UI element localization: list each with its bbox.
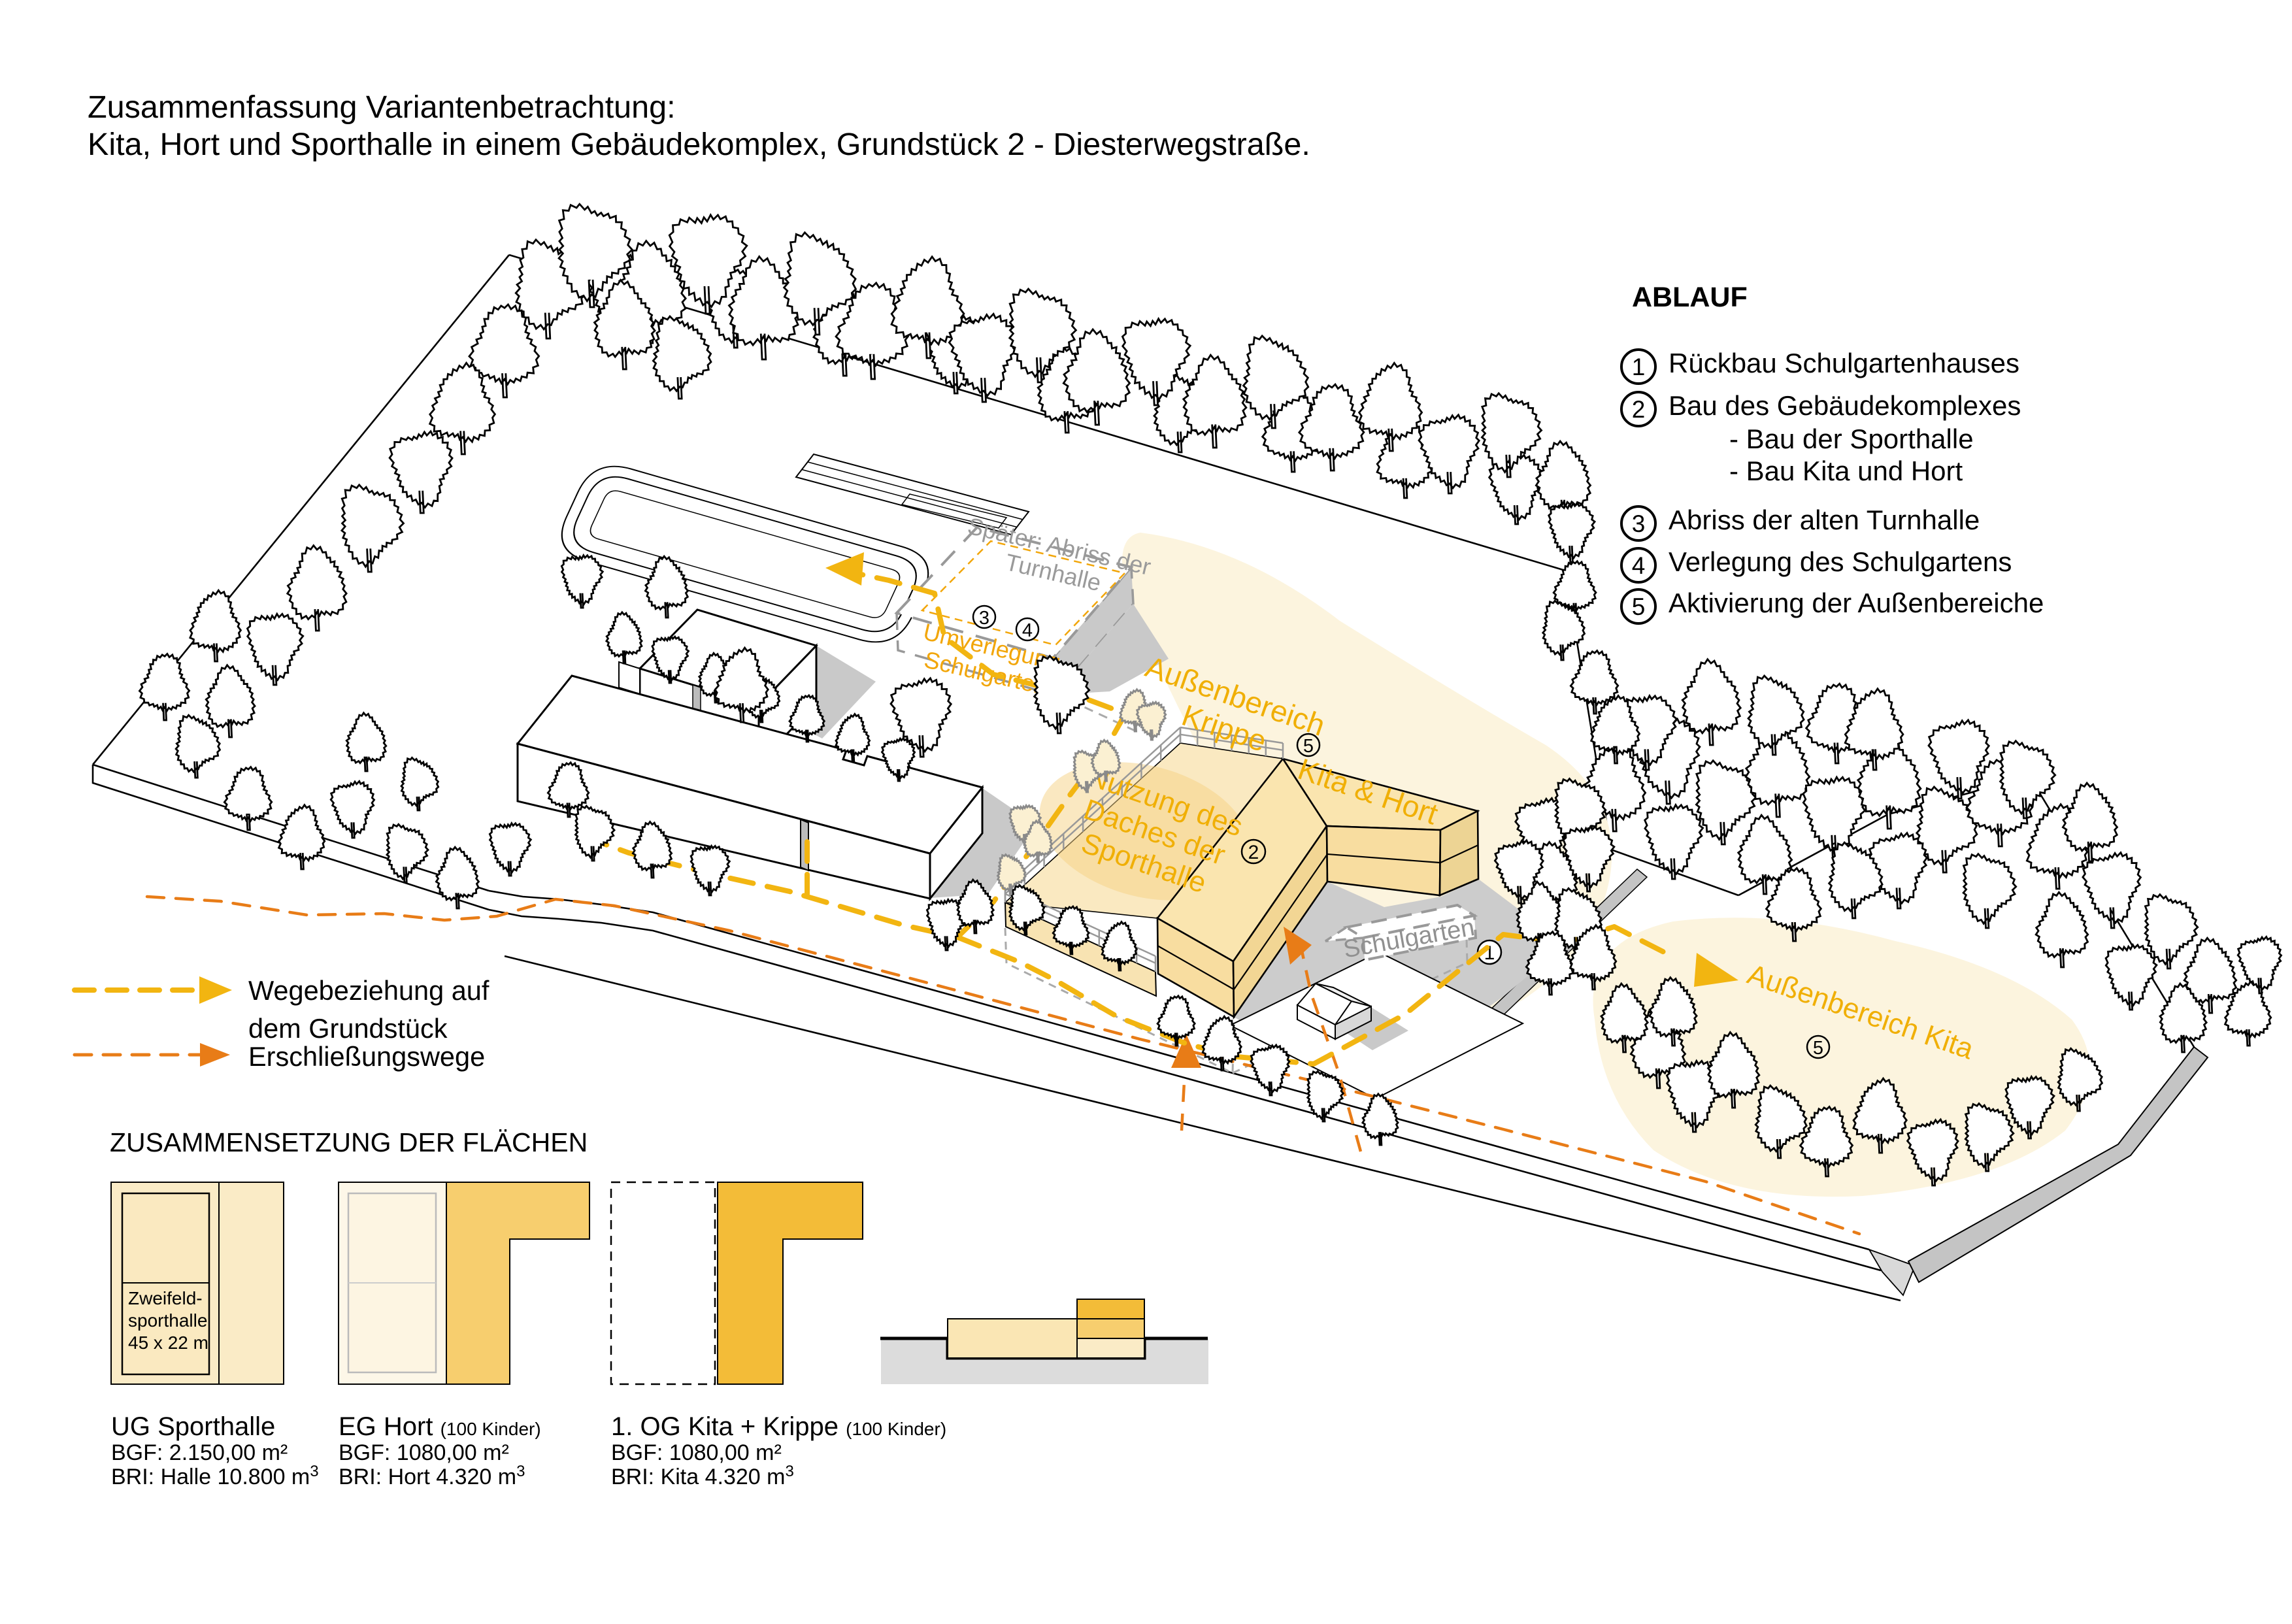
svg-text:BGF: 1080,00 m²: BGF: 1080,00 m² bbox=[339, 1440, 509, 1465]
svg-text:BRI: Kita 4.320 m3: BRI: Kita 4.320 m3 bbox=[611, 1463, 794, 1489]
svg-text:dem Grundstück: dem Grundstück bbox=[248, 1013, 448, 1044]
svg-text:BGF: 2.150,00 m²: BGF: 2.150,00 m² bbox=[111, 1440, 288, 1465]
svg-text:Abriss der alten Turnhalle: Abriss der alten Turnhalle bbox=[1669, 505, 1980, 535]
svg-text:Bau des Gebäudekomplexes: Bau des Gebäudekomplexes bbox=[1669, 390, 2021, 421]
svg-text:Rückbau Schulgartenhauses: Rückbau Schulgartenhauses bbox=[1669, 348, 2019, 378]
svg-text:3: 3 bbox=[979, 608, 989, 629]
svg-text:4: 4 bbox=[1022, 620, 1033, 641]
svg-text:5: 5 bbox=[1813, 1038, 1823, 1059]
svg-text:Wegebeziehung auf: Wegebeziehung auf bbox=[248, 975, 490, 1006]
svg-text:Verlegung des Schulgartens: Verlegung des Schulgartens bbox=[1669, 546, 2012, 577]
svg-text:BRI: Hort 4.320 m3: BRI: Hort 4.320 m3 bbox=[339, 1463, 525, 1489]
svg-text:UG Sporthalle: UG Sporthalle bbox=[111, 1412, 275, 1441]
svg-text:sporthalle: sporthalle bbox=[128, 1310, 207, 1331]
svg-text:Kita, Hort und Sporthalle in e: Kita, Hort und Sporthalle in einem Gebäu… bbox=[88, 127, 1310, 162]
svg-text:5: 5 bbox=[1632, 593, 1646, 620]
svg-text:Aktivierung der Außenbereiche: Aktivierung der Außenbereiche bbox=[1669, 588, 2044, 618]
svg-text:1: 1 bbox=[1632, 354, 1646, 380]
svg-text:5: 5 bbox=[1303, 736, 1314, 757]
svg-text:- Bau der Sporthalle: - Bau der Sporthalle bbox=[1729, 423, 1974, 454]
svg-text:ZUSAMMENSETZUNG DER FLÄCHEN: ZUSAMMENSETZUNG DER FLÄCHEN bbox=[110, 1127, 588, 1157]
svg-text:ABLAUF: ABLAUF bbox=[1632, 282, 1748, 313]
svg-text:BRI: Halle 10.800 m3: BRI: Halle 10.800 m3 bbox=[111, 1463, 319, 1489]
svg-text:4: 4 bbox=[1632, 552, 1646, 579]
svg-text:BGF: 1080,00 m²: BGF: 1080,00 m² bbox=[611, 1440, 782, 1465]
svg-text:2: 2 bbox=[1632, 396, 1646, 423]
svg-text:2: 2 bbox=[1248, 842, 1259, 863]
svg-text:45 x 22 m: 45 x 22 m bbox=[128, 1333, 208, 1353]
svg-text:Zweifeld-: Zweifeld- bbox=[128, 1288, 203, 1308]
svg-text:- Bau Kita und Hort: - Bau Kita und Hort bbox=[1729, 456, 1963, 486]
svg-text:3: 3 bbox=[1632, 510, 1646, 537]
svg-text:Erschließungswege: Erschließungswege bbox=[248, 1041, 485, 1072]
svg-text:Zusammenfassung Variantenbetra: Zusammenfassung Variantenbetrachtung: bbox=[88, 90, 676, 125]
